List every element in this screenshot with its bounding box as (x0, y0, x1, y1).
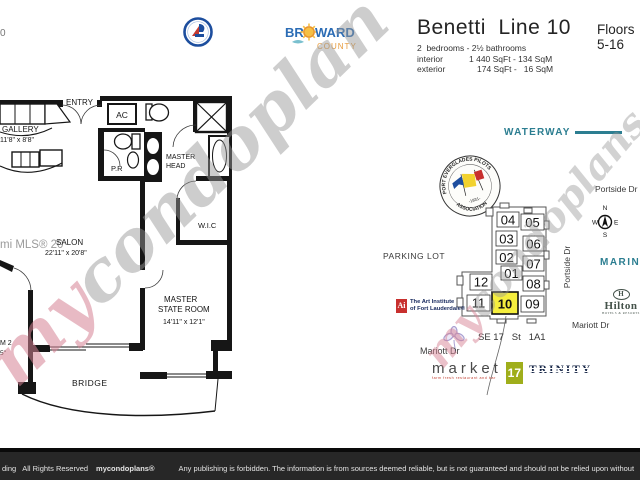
balcony-edge (22, 394, 215, 415)
master-stateroom-label-2: STATE ROOM (158, 305, 210, 314)
site-unit-03: 03 (499, 232, 513, 247)
trinity-yachts-logo: TRINITY YACHTS (529, 364, 640, 379)
master-head-label-1: MASTER (166, 154, 195, 161)
hilton-tagline: HOTELS & RESORTS (598, 311, 640, 315)
closet-hatched (196, 102, 227, 132)
art-institute-line2: of Fort Lauderdale® (410, 306, 465, 313)
salon-dim: 22'11" x 20'8" (45, 250, 87, 257)
footer-fragment: ding (2, 464, 16, 473)
waterway-label: WATERWAY (504, 127, 571, 138)
pr-label: P.R (111, 164, 123, 173)
condo-plan-sheet: 0 BR WARD COUNTY Benetti Line 10 Floors … (0, 0, 640, 480)
interior-value: 1 440 SqFt - 134 SqM (469, 54, 552, 64)
windows (50, 344, 206, 377)
site-unit-11: 11 (472, 296, 486, 311)
wave-icon (292, 40, 304, 44)
entry-label: ENTRY (66, 98, 94, 107)
gallery-dim: 11'8" x 8'8" (0, 137, 34, 144)
street-label: SE 17 St 1A1 (478, 332, 546, 343)
site-unit-08: 08 (526, 277, 540, 292)
pr-toilet (115, 134, 141, 149)
gallery-label: GALLERY (2, 125, 39, 134)
footer-rights: All Rights Reserved (22, 464, 88, 473)
hilton-name: Hilton (598, 301, 640, 311)
unit-numbers: 04 05 03 06 02 07 01 08 12 11 10 09 (472, 213, 541, 312)
site-unit-04: 04 (501, 213, 515, 228)
ac-label: AC (116, 110, 128, 120)
page-title: Benetti Line 10 (417, 16, 571, 40)
footer-brand: mycondoplans® (96, 464, 154, 473)
mariott-dr-left-label: Mariott Dr (420, 346, 460, 356)
market17-logo: market farm fresh restaurant and bar 17 (432, 362, 523, 384)
hilton-logo: H Hilton HOTELS & RESORTS (598, 283, 640, 315)
stateroom2-label-fragment: M 2 (0, 340, 12, 347)
market17-tagline: farm fresh restaurant and bar (432, 376, 502, 380)
marina-label: MARINA (600, 257, 640, 268)
salon-label: SALON (56, 238, 83, 247)
pr-sink (128, 152, 139, 168)
master-stateroom-label-1: MASTER (164, 295, 198, 304)
balcony-edge-end (215, 379, 218, 411)
master-tub (209, 136, 230, 177)
bed-bath-line: 2 bedrooms - 2½ bathrooms (417, 43, 526, 53)
parking-lot-label: PARKING LOT (383, 251, 445, 261)
market17-number: 17 (506, 362, 523, 384)
exterior-label: exterior (417, 64, 445, 74)
trinity-stripe (529, 368, 640, 369)
site-unit-05: 05 (525, 215, 539, 230)
cropped-text-fragment: 0 (0, 28, 6, 39)
site-unit-12: 12 (474, 275, 488, 290)
broward-county-logo: BR WARD COUNTY (284, 20, 356, 54)
circular-port-logo (182, 15, 214, 49)
floors-label: Floors 5-16 (597, 22, 640, 52)
mariott-dr-right-label: Mariott Dr (572, 320, 609, 330)
bridge-label: BRIDGE (72, 378, 108, 388)
hilton-mark: H (613, 289, 630, 300)
site-unit-07: 07 (526, 257, 540, 272)
footer-bar: ding All Rights Reserved mycondoplans® A… (0, 448, 640, 480)
portside-dr-side-label: Portside Dr (562, 231, 572, 303)
vanity-sink-2 (147, 159, 160, 176)
master-head-label-2: HEAD (166, 163, 185, 170)
waterway-line (575, 131, 622, 134)
trinity-stripe (529, 371, 640, 372)
art-institute-logo: Ai The Art Institute of Fort Lauderdale® (396, 299, 465, 313)
stateroom2-dim-fragment: 5" (0, 350, 7, 357)
floor-plan: ENTRY GALLERY 11'8" x 8'8" AC P.R MASTER… (0, 88, 400, 448)
market17-name: market (432, 362, 502, 376)
interior-label: interior (417, 54, 443, 64)
broward-ward-text: WARD (315, 25, 355, 40)
site-unit-01: 01 (504, 266, 518, 281)
art-institute-mark: Ai (396, 299, 407, 313)
wic-label: W.I.C (198, 221, 217, 230)
vanity-sink-1 (147, 138, 160, 155)
exterior-value: 174 SqFt - 16 SqM (477, 64, 553, 74)
site-unit-09: 09 (525, 297, 539, 312)
portside-dr-top-label: Portside Dr (595, 184, 638, 194)
site-unit-06: 06 (526, 237, 540, 252)
broward-county-text: COUNTY (317, 42, 356, 51)
master-toilet (146, 104, 169, 121)
footer-notice: Any publishing is forbidden. The informa… (179, 464, 635, 473)
site-unit-02: 02 (499, 250, 513, 265)
master-stateroom-dim: 14'11" x 12'1" (163, 319, 205, 326)
site-unit-10: 10 (498, 297, 512, 312)
